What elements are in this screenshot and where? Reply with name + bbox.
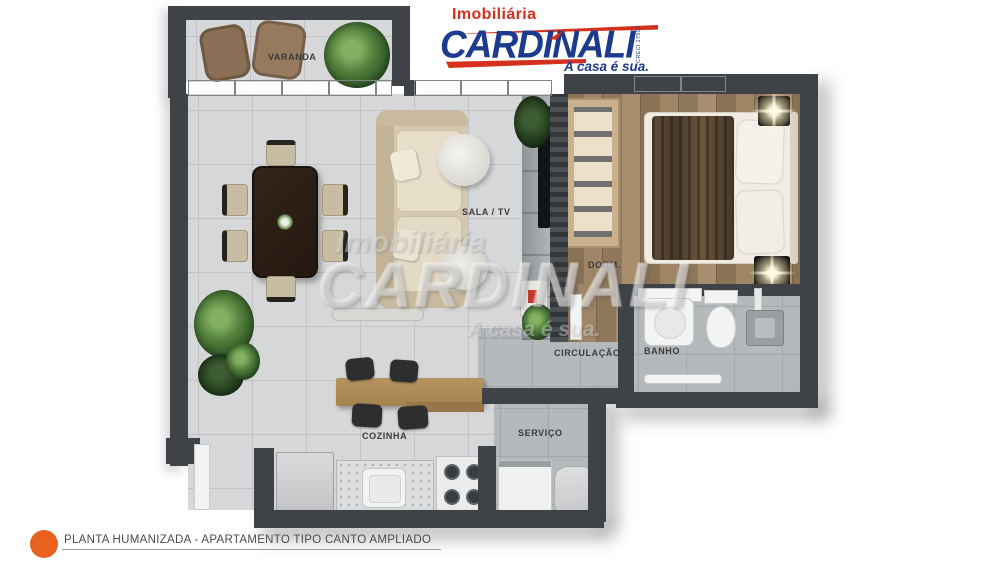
toilet-tank [704, 290, 738, 304]
dining-chair [222, 230, 248, 262]
wall-varanda-top [168, 6, 410, 20]
caption-bullet-icon [30, 530, 58, 558]
wall-banho-left [618, 284, 634, 392]
varanda-plant [324, 22, 390, 88]
wall-servico-east [588, 392, 606, 522]
room-label-sala: SALA / TV [462, 207, 511, 217]
wall-banho-south [616, 392, 818, 408]
round-pouf [440, 246, 488, 290]
room-label-circulacao: CIRCULAÇÃO [554, 348, 621, 358]
sofa-back [376, 110, 394, 308]
wall-bottom [254, 510, 604, 528]
bed-blanket [652, 116, 734, 260]
headboard [790, 112, 798, 264]
bar-stool [389, 359, 418, 383]
stove-burner [444, 489, 460, 505]
entry-door [194, 444, 210, 510]
table-centerpiece [277, 214, 293, 230]
washing-machine [498, 460, 552, 514]
toilet-bowl [706, 306, 736, 348]
wall-kitchen-servico-stub [478, 446, 496, 512]
sink-basin [369, 475, 401, 503]
wall-left-outer [170, 94, 188, 466]
sofa-arm [376, 110, 468, 126]
washer-panel [499, 461, 551, 467]
bedside-lamp-sparkle [758, 96, 790, 126]
cabinet-artwork [528, 290, 537, 303]
logo-creci-text: CRECI 1750J [636, 26, 642, 63]
room-label-servico: SERVIÇO [518, 428, 563, 438]
wardrobe-hangers [574, 107, 612, 237]
dining-table [252, 166, 318, 278]
room-label-dorm: DORM. [588, 260, 621, 270]
floor-plant [226, 342, 260, 380]
stove-burner [444, 464, 460, 480]
varanda-sliding-door-glass [188, 80, 392, 96]
tv-rack-plant [514, 96, 552, 148]
room-label-varanda: VARANDA [268, 52, 317, 62]
wall-varanda-left [168, 6, 186, 98]
bar-stool [351, 403, 382, 428]
varanda-lounge-chair [198, 22, 253, 83]
shower-head-plate [755, 318, 775, 338]
varanda-lounge-chair [250, 19, 307, 81]
throw-pillow [392, 228, 423, 262]
shower-head [746, 310, 784, 346]
fridge [276, 452, 334, 512]
towel-rail [644, 374, 722, 384]
console-bench [332, 308, 424, 321]
wall-varanda-right [392, 6, 410, 86]
wall-tv-divider [550, 94, 568, 342]
dining-chair [322, 230, 348, 262]
logo-imobiliaria-text: Imobiliária [452, 6, 536, 24]
caption-text: PLANTA HUMANIZADA - APARTAMENTO TIPO CAN… [62, 534, 441, 550]
kitchen-sink [362, 468, 406, 508]
dining-chair [266, 140, 296, 166]
sala-window-glass [414, 80, 552, 96]
bar-stool [345, 357, 375, 382]
wardrobe [566, 98, 620, 248]
bathroom-sink [644, 298, 694, 346]
wall-right-outer [800, 74, 818, 408]
round-side-table [438, 134, 490, 186]
room-label-cozinha: COZINHA [362, 431, 407, 441]
sofa-arm [376, 292, 468, 308]
dining-chair [266, 276, 296, 302]
dining-chair [222, 184, 248, 216]
bar-stool [397, 405, 429, 430]
wall-circulacao-south [482, 388, 622, 404]
sink-bowl [654, 307, 686, 339]
cardinali-logo: Imobiliária CARDINALI A casa é sua. CREC… [438, 2, 678, 80]
floor-plan-canvas: Imobiliária CARDINALI A casa é sua. CREC… [0, 0, 1000, 562]
room-label-banho: BANHO [644, 346, 680, 356]
shower-pipe [754, 288, 762, 312]
dining-chair [322, 184, 348, 216]
pillow [735, 189, 785, 255]
dorm-door [570, 294, 582, 340]
